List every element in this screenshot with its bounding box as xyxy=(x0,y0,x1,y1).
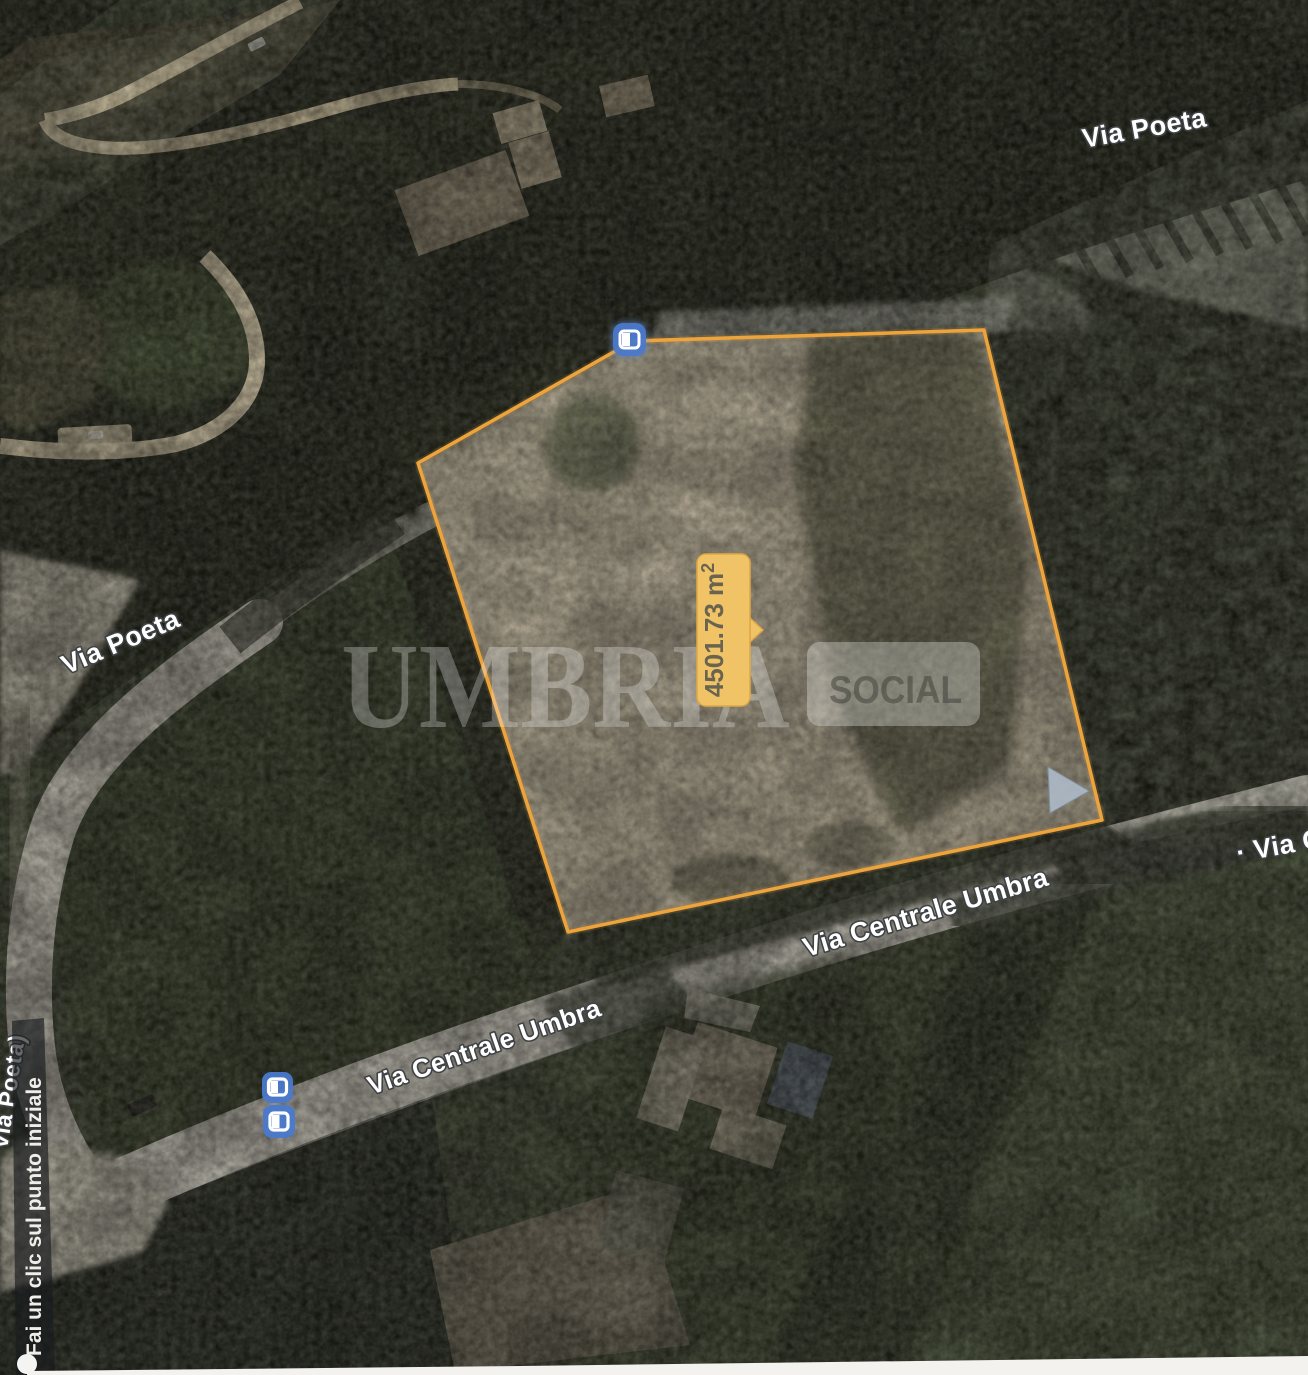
svg-text:Fai un clic sul punto iniziale: Fai un clic sul punto iniziale xyxy=(23,1077,46,1356)
svg-text:SOCIAL: SOCIAL xyxy=(829,669,962,712)
svg-text:4501.73 m2: 4501.73 m2 xyxy=(698,563,729,697)
